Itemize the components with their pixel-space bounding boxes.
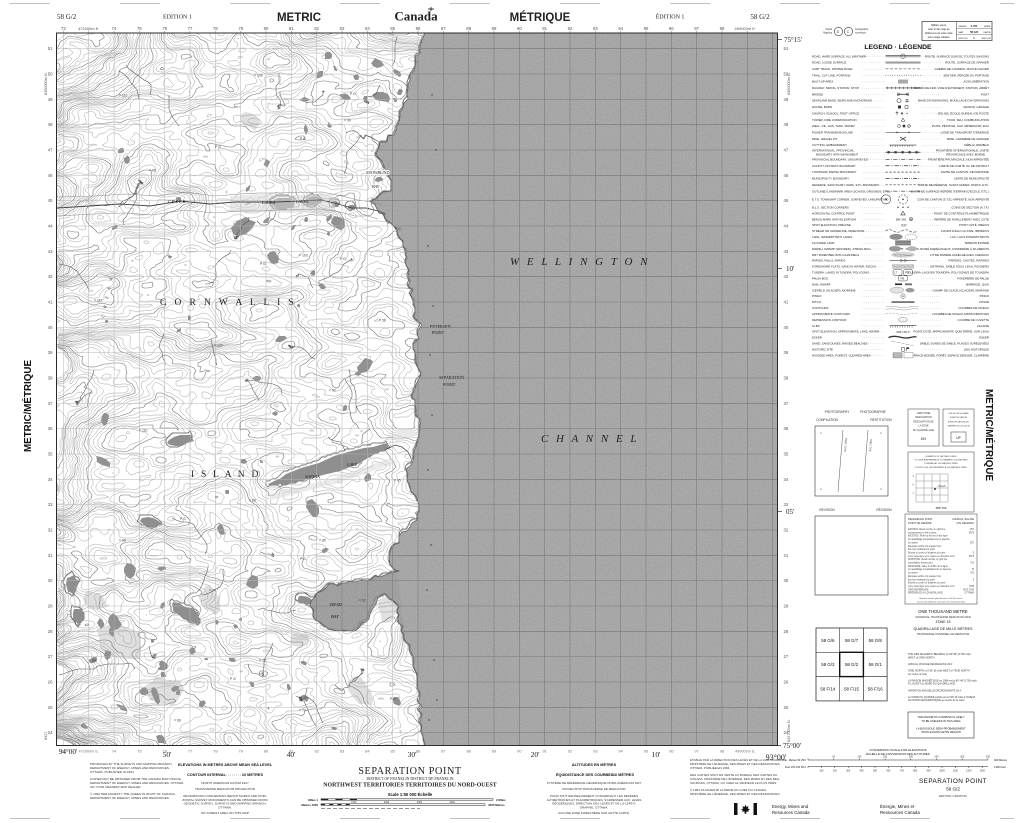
svg-text:I S L A N D: I S L A N D: [191, 470, 261, 480]
svg-text:8350000m N.: 8350000m N.: [44, 72, 48, 95]
svg-text:SÉRIE: SÉRIE: [984, 25, 991, 28]
svg-text:RESTITUTION: RESTITUTION: [870, 418, 892, 422]
svg-text:FLOODED LAND: FLOODED LAND: [812, 241, 835, 245]
svg-text:WOODED AREA, FOREST, CLEARED A: WOODED AREA, FOREST, CLEARED AREA: [812, 353, 871, 357]
svg-text:48: 48: [784, 122, 789, 127]
svg-text:SOPHIA: SOPHIA: [305, 474, 320, 479]
svg-text:85: 85: [390, 749, 395, 754]
svg-text:TUNDRA: LAKES IN TUNDRA, POLYG: TUNDRA: LAKES IN TUNDRA, POLYGONS: [812, 271, 869, 275]
svg-text:SERIES: SERIES: [959, 26, 968, 28]
svg-text:SABLE, DUNES DE SABLE, PLAGES: SABLE, DUNES DE SABLE, PLAGES SURÉLEVÉES: [920, 341, 989, 346]
svg-text:CARTE: CARTE: [983, 31, 991, 34]
svg-text:refer to this map as:: refer to this map as:: [928, 28, 950, 31]
svg-text:WELL, OIL, GAS, TANK, WATER: WELL, OIL, GAS, TANK, WATER: [812, 124, 855, 128]
svg-text:24: 24: [48, 730, 53, 735]
svg-text:ANNUAL CHANGE DECREASING 26.4': ANNUAL CHANGE DECREASING 26.4': [908, 663, 953, 666]
svg-text:NORTHWEST TERRITORIES TERRIT: NORTHWEST TERRITORIES TERRITOIRES DU NOR…: [323, 783, 496, 789]
svg-text:COUNTY, DISTRICT BOUNDARY: COUNTY, DISTRICT BOUNDARY: [812, 164, 856, 168]
svg-text:45: 45: [784, 198, 789, 203]
svg-text:ESKER: ESKER: [979, 336, 989, 340]
svg-text:350: 350: [986, 756, 991, 759]
svg-text:WEST of GRID NORTH: WEST of GRID NORTH: [908, 656, 935, 659]
svg-text:CHURCH, SCHOOL, POST OFFICE: CHURCH, SCHOOL, POST OFFICE: [812, 111, 859, 115]
svg-text:COINS DE SECTION (A.T.F.): COINS DE SECTION (A.T.F.): [951, 205, 989, 209]
svg-text:93: 93: [593, 26, 598, 31]
svg-text:REFERENCE POINT: REFERENCE POINT: [908, 517, 933, 521]
svg-text:34: 34: [784, 477, 789, 482]
svg-text:ÉCHELLE DE CONVERSION DES ALTI: ÉCHELLE DE CONVERSION DES ALTITUDES: [866, 751, 930, 756]
svg-text:TO BE USELESS IN THIS AREA: TO BE USELESS IN THIS AREA: [921, 719, 961, 723]
svg-text:POUR TOUS LES REPÉRÉS À 100 MÈ: POUR TOUS LES REPÉRÉS À 100 MÈTRES PRÈS: [915, 466, 967, 469]
svg-text:97: 97: [694, 26, 699, 31]
svg-text:A 701: A 701: [971, 24, 978, 28]
svg-text:DEPARTMENT OF ENERGY, MINES AN: DEPARTMENT OF ENERGY, MINES AND RESOURCE…: [90, 796, 170, 800]
svg-text:PHOTOGRAPHIE: PHOTOGRAPHIE: [860, 410, 886, 414]
svg-text:DITCH: DITCH: [812, 300, 821, 304]
svg-text:111: 111: [122, 94, 127, 98]
svg-text:96: 96: [669, 26, 674, 31]
svg-text:58 F/15: 58 F/15: [844, 686, 859, 691]
svg-text:9575: 9575: [969, 556, 975, 558]
svg-text:58 G/8: 58 G/8: [869, 638, 883, 643]
svg-text:4000: 4000: [450, 801, 456, 804]
svg-text:immediately below point: immediately below point: [908, 562, 933, 565]
svg-text:44: 44: [784, 224, 789, 229]
svg-text:78: 78: [212, 589, 216, 593]
svg-text:LA ZONE: LA ZONE: [918, 425, 929, 428]
svg-text:du repère: du repère: [908, 541, 919, 544]
svg-text:32: 32: [784, 527, 789, 532]
svg-text:OTTAWA. PUBLISHED IN 1984.: OTTAWA. PUBLISHED IN 1984.: [90, 770, 135, 774]
svg-text:C R E E K: C R E E K: [168, 199, 186, 204]
svg-text:75: 75: [137, 749, 142, 754]
svg-text:PONT: PONT: [981, 92, 989, 96]
svg-text:58 G/7: 58 G/7: [845, 638, 859, 643]
svg-text:82: 82: [314, 749, 319, 754]
svg-text:HEAD: HEAD: [329, 602, 343, 607]
svg-text:800: 800: [913, 770, 918, 773]
svg-text:METRIC/MÉTRIQUE: METRIC/MÉTRIQUE: [983, 389, 995, 481]
svg-text:ELEVATIONS IN METRES ABOVE MEA: ELEVATIONS IN METRES ABOVE MEAN SEA LEVE…: [178, 763, 273, 767]
svg-text:CART TRACK, WINTER ROAD: CART TRACK, WINTER ROAD: [812, 67, 852, 71]
svg-text:IDENTIFICATION: IDENTIFICATION: [950, 416, 968, 419]
svg-text:PROVINCIALE AVEC BORNE: PROVINCIALE AVEC BORNE: [946, 152, 985, 156]
svg-text:P G: P G: [260, 262, 266, 266]
svg-text:TOWER, FIRE COMMUNICATION: TOWER, FIRE COMMUNICATION: [812, 118, 857, 122]
svg-text:RÉFÉRENCE AU QUADRILLAGE: RÉFÉRENCE AU QUADRILLAGE: [908, 592, 943, 595]
svg-text:P G: P G: [300, 137, 306, 141]
svg-text:46: 46: [48, 173, 53, 178]
svg-text:P G: P G: [180, 517, 186, 521]
svg-text:La précision différente commun: La précision différente commune est à 10…: [917, 600, 965, 603]
svg-text:GRID ZONE: GRID ZONE: [917, 412, 931, 415]
svg-text:TRANSVERSE MERCATOR PROJECTION: TRANSVERSE MERCATOR PROJECTION: [195, 787, 255, 791]
svg-text:E.T.S. TOWNSHIP CORNER, SURVEY: E.T.S. TOWNSHIP CORNER, SURVEYED, UNSURV…: [812, 197, 888, 201]
svg-text:AUCUNE ZONE FORESTIÈRE SUR CET: AUCUNE ZONE FORESTIÈRE SUR CETTE CARTE.: [558, 810, 630, 815]
svg-text:EASTING. Read number on grid l: EASTING. Read number on grid line: [908, 528, 946, 531]
svg-text:PROVINCIAL BOUNDARY, UNSURVEYE: PROVINCIAL BOUNDARY, UNSURVEYED: [812, 158, 868, 162]
svg-text:39: 39: [784, 350, 789, 355]
svg-text:47: 47: [48, 148, 53, 153]
svg-text:9575: 9575: [969, 532, 975, 534]
svg-text:8350000m N.: 8350000m N.: [787, 72, 791, 95]
svg-text:POINT: POINT: [432, 330, 445, 335]
svg-text:ÉQUIDISTANCE DES COURBES: ÉQUIDISTANCE DES COURBES: [556, 772, 614, 777]
svg-text:88: 88: [466, 749, 471, 754]
svg-text:SOURCES, OTTAWA, OU CHEZ LE VE: SOURCES, OTTAWA, OU CHEZ LE VENDEUR LE P…: [690, 780, 777, 785]
svg-text:OUTLINED LANDMARK AREA (SCHOOL: OUTLINED LANDMARK AREA (SCHOOL GROUNDS, …: [812, 189, 890, 193]
svg-text:FONDRIÈRE DE PALSE: FONDRIÈRE DE PALSE: [957, 275, 989, 280]
svg-text:33: 33: [48, 502, 53, 507]
svg-text:ALTITUDES EN MÈTRES: ALTITUDES EN MÈTRES: [572, 762, 617, 767]
svg-text:LIMITE DE RÉSERVE, SANCTUAIRES: LIMITE DE RÉSERVE, SANCTUAIRES, PARCS, E…: [919, 182, 990, 187]
svg-text:98: 98: [720, 26, 725, 31]
svg-text:GRID REFERENCE: GRID REFERENCE: [908, 589, 929, 591]
svg-text:8327: 8327: [44, 732, 48, 740]
svg-text:POINT COTÉ, PRÉCIS: POINT COTÉ, PRÉCIS: [959, 222, 989, 227]
svg-text:78: 78: [213, 749, 218, 754]
svg-text:Référence de cette carte: Référence de cette carte: [925, 32, 953, 35]
svg-text:PETERSEN: PETERSEN: [430, 324, 451, 329]
svg-text:BOUNDARY WITH MONUMENT: BOUNDARY WITH MONUMENT: [816, 152, 859, 156]
svg-text:50: 50: [48, 72, 53, 77]
svg-text:CHEMIN DE FER, VOIE D'ÉVITEMEN: CHEMIN DE FER, VOIE D'ÉVITEMENT, STATION…: [913, 85, 989, 90]
svg-text:10 METRES: 10 METRES: [242, 773, 264, 777]
svg-text:900: 900: [927, 770, 932, 773]
svg-text:20': 20': [531, 750, 541, 759]
svg-text:46: 46: [784, 173, 789, 178]
svg-text:31: 31: [48, 553, 53, 558]
svg-text:THE MAGNETIC COMPASS IS LIKELY: THE MAGNETIC COMPASS IS LIKELY: [917, 715, 964, 719]
svg-text:MINE, CARRIÈRE DE GRAVIER: MINE, CARRIÈRE DE GRAVIER: [947, 136, 989, 141]
svg-text:W E L L I N G T O N: W E L L I N G T O N: [510, 256, 650, 268]
svg-text:this line northward to point: this line northward to point: [908, 578, 935, 581]
svg-text:2 Miles: 2 Miles: [496, 798, 506, 802]
svg-text:58 G/6: 58 G/6: [821, 638, 835, 643]
svg-text:COIN DE CANTON (S.T.E.) ARPENT: COIN DE CANTON (S.T.E.) ARPENTÉ, NON ARP…: [917, 196, 989, 201]
svg-text:COURBES DE NIVEAU APPROXIMATIV: COURBES DE NIVEAU APPROXIMATIVES: [932, 312, 989, 316]
svg-text:41: 41: [784, 300, 789, 305]
svg-text:40: 40: [48, 325, 53, 330]
svg-text:MARAIS, BOISÉ MARÉCAGEUX, FOND: MARAIS, BOISÉ MARÉCAGEUX, FONDRIÈRE À FI…: [908, 246, 989, 251]
svg-text:SNOWBLIND: SNOWBLIND: [366, 170, 390, 175]
svg-text:NO FOREST AREA ON THIS MAP: NO FOREST AREA ON THIS MAP: [201, 811, 249, 815]
svg-text:85: 85: [322, 539, 326, 543]
svg-text:32: 32: [48, 527, 53, 532]
svg-text:BAY: BAY: [331, 614, 339, 619]
svg-text:C H A N N E L: C H A N N E L: [541, 433, 639, 445]
svg-text:MÉTRIQUE: MÉTRIQUE: [510, 11, 571, 24]
svg-text:99: 99: [347, 119, 351, 123]
svg-text:8327000m N.: 8327000m N.: [787, 719, 791, 742]
svg-text:REVISION: REVISION: [819, 508, 835, 512]
svg-text:ONE THOUSAND METRE: ONE THOUSAND METRE: [918, 609, 968, 614]
svg-text:29: 29: [784, 603, 789, 608]
svg-text:74: 74: [112, 749, 117, 754]
svg-text:PUITS, PÉTROLE, GAZ, RÉSERVOIR: PUITS, PÉTROLE, GAZ, RÉSERVOIR, EAU: [932, 123, 989, 128]
svg-text:30': 30': [408, 750, 418, 759]
svg-text:TRANSVERSE UNIVERSEL DE MERCAT: TRANSVERSE UNIVERSEL DE MERCATOR: [917, 632, 970, 636]
svg-text:51: 51: [48, 46, 53, 51]
svg-text:91: 91: [542, 26, 547, 31]
svg-text:LAC, LACS INTERMITTENTS: LAC, LACS INTERMITTENTS: [950, 235, 989, 239]
svg-text:93: 93: [593, 749, 598, 754]
svg-text:DAM, WHARF: DAM, WHARF: [812, 282, 831, 286]
svg-text:25: 25: [48, 705, 53, 710]
svg-text:UP: UP: [956, 436, 960, 440]
svg-text:SPOT ELEVATION, PRECISE: SPOT ELEVATION, PRECISE: [812, 223, 851, 227]
svg-text:FALAISE: FALAISE: [977, 324, 989, 328]
svg-text:EXAMPLE OF METHOD USED: EXAMPLE OF METHOD USED: [926, 455, 957, 458]
svg-text:entre cette ligne et le repère: entre cette ligne et le repère en direct…: [908, 585, 955, 588]
svg-text:TOWNSHIP, PARISH BOUNDARY: TOWNSHIP, PARISH BOUNDARY: [812, 170, 857, 174]
svg-text:Resources Canada: Resources Canada: [772, 810, 810, 815]
svg-text:47: 47: [784, 148, 789, 153]
svg-text:Canada: Canada: [394, 9, 438, 24]
svg-text:45: 45: [397, 479, 401, 483]
svg-text:STREAM OR SHORELINE, INDEFINIT: STREAM OR SHORELINE, INDEFINITE: [812, 229, 864, 233]
svg-text:103: 103: [302, 254, 308, 258]
svg-text:400 Metres: 400 Metres: [994, 758, 1008, 762]
svg-text:42: 42: [784, 274, 789, 279]
svg-text:PINGO: PINGO: [980, 294, 990, 298]
svg-text:95: 95: [644, 749, 649, 754]
svg-text:1300: 1300: [980, 770, 986, 773]
svg-text:36: 36: [784, 426, 789, 431]
svg-text:85: 85: [390, 26, 395, 31]
svg-text:50': 50': [163, 750, 173, 759]
svg-text:15X: 15X: [921, 437, 928, 441]
svg-text:92: 92: [568, 26, 573, 31]
svg-text:76: 76: [162, 26, 167, 31]
svg-text:LIMITE DE COMTÉ OU DE DISTRICT: LIMITE DE COMTÉ OU DE DISTRICT: [940, 163, 990, 168]
svg-text:42: 42: [48, 274, 53, 279]
svg-text:DEPRESSION CONTOUR: DEPRESSION CONTOUR: [812, 318, 846, 322]
svg-text:77: 77: [188, 749, 193, 754]
svg-text:COURBES DE NIVEAU: COURBES DE NIVEAU: [958, 306, 989, 310]
svg-text:this line northward to point: this line northward to point: [908, 548, 935, 551]
svg-text:94°00': 94°00': [59, 748, 78, 756]
svg-text:RAPIDS, FALLS, RAPIDS: RAPIDS, FALLS, RAPIDS: [812, 259, 845, 263]
svg-text:70: 70: [302, 709, 306, 713]
svg-text:1100: 1100: [953, 770, 959, 773]
svg-text:90: 90: [517, 26, 522, 31]
svg-text:SAND, SAND DUNES, RAISED BEACH: SAND, SAND DUNES, RAISED BEACHES: [812, 342, 868, 346]
svg-text:CHEMIN DE CHARROI, ROUTE D'HIV: CHEMIN DE CHARROI, ROUTE D'HIVER: [935, 67, 989, 71]
svg-text:WESTING. Refer to the left of: WESTING. Refer to the left of the ligne: [908, 535, 948, 538]
svg-text:GRAPHIE, OTTAWA.: GRAPHIE, OTTAWA.: [580, 805, 609, 809]
svg-text:1200: 1200: [966, 770, 972, 773]
svg-text:TOUR, FEU, COMMUNICATION: TOUR, FEU, COMMUNICATION: [947, 118, 989, 122]
svg-text:POINT COTÉ, APPROXIMATIF, QUM: POINT COTÉ, APPROXIMATIF, QUM TERRE, SUR…: [913, 329, 989, 334]
svg-text:ESTRANS, SABLE SOUS L'EAU, ROC: ESTRANS, SABLE SOUS L'EAU, ROCHERS: [930, 265, 989, 269]
svg-text:PROJECTION TRANSVERSE DE MERCA: PROJECTION TRANSVERSE DE MERCATOR: [562, 787, 626, 791]
svg-text:30: 30: [784, 578, 789, 583]
svg-text:DISTRICT OF FRANKLIN DIST: DISTRICT OF FRANKLIN DISTRICT DE FRANKLI…: [366, 777, 453, 781]
svg-text:40: 40: [784, 325, 789, 330]
svg-text:44: 44: [48, 224, 53, 229]
svg-text:58 G/2: 58 G/2: [946, 787, 960, 792]
svg-text:METRIC: METRIC: [277, 12, 321, 24]
svg-text:LIMITE DE SURFACE REPÈRE (TERR: LIMITE DE SURFACE REPÈRE (TERRAIN D'ÉCOL…: [911, 188, 989, 193]
svg-text:entre cette ligne et le repère: entre cette ligne et le repère en direct…: [908, 555, 955, 558]
svg-text:Estimate tenths of a square fr: Estimate tenths of a square from: [908, 545, 941, 548]
svg-text:NORTHING. Read number on grid: NORTHING. Read number on grid line: [908, 558, 948, 561]
svg-text:Miles 1: Miles 1: [308, 798, 318, 802]
svg-text:39: 39: [48, 350, 53, 355]
svg-text:CONTOURS: CONTOURS: [812, 306, 829, 310]
svg-text:LEGEND · LÉGENDE: LEGEND · LÉGENDE: [864, 42, 932, 51]
svg-text:PB: PB: [901, 277, 905, 281]
svg-text:BUILT-UP AREA: BUILT-UP AREA: [812, 80, 833, 84]
svg-text:79: 79: [238, 749, 243, 754]
svg-text:MARSH, SWAMP (WOODED), STRING: MARSH, SWAMP (WOODED), STRING BOG: [812, 247, 871, 251]
svg-text:75°15': 75°15': [784, 36, 802, 44]
svg-text:472000m E.: 472000m E.: [78, 26, 100, 31]
svg-text:SEPARATION: SEPARATION: [439, 375, 464, 380]
svg-text:31: 31: [784, 553, 789, 558]
svg-text:Ressources Canada: Ressources Canada: [880, 810, 920, 815]
svg-text:(ON DEMAND): (ON DEMAND): [956, 521, 974, 525]
svg-text:26: 26: [784, 679, 789, 684]
svg-text:4000 Metres: 4000 Metres: [488, 803, 505, 807]
svg-text:80: 80: [264, 26, 269, 31]
svg-text:SENTIER, PERCÉE DU PORTAGE: SENTIER, PERCÉE DU PORTAGE: [943, 72, 989, 77]
svg-text:86: 86: [416, 749, 421, 754]
svg-text:LIMITE DE MUNICIPALITÉ: LIMITE DE MUNICIPALITÉ: [954, 176, 989, 181]
svg-text:108: 108: [257, 74, 263, 78]
svg-text:7035: 7035: [969, 586, 975, 588]
svg-text:P G: P G: [390, 697, 396, 701]
svg-text:43: 43: [48, 249, 53, 254]
svg-text:P G: P G: [215, 145, 221, 149]
svg-text:Mapping: Mapping: [823, 33, 833, 35]
svg-text:83: 83: [340, 26, 345, 31]
svg-text:300: 300: [846, 770, 851, 773]
svg-text:PG: PG: [905, 271, 909, 275]
svg-text:PALSA BOG: PALSA BOG: [812, 276, 829, 280]
svg-text:MUNICIPALITY BOUNDARY: MUNICIPALITY BOUNDARY: [812, 177, 849, 181]
svg-text:ROAD, LOOSE SURFACE: ROAD, LOOSE SURFACE: [812, 61, 846, 65]
svg-text:58 G/1: 58 G/1: [869, 662, 883, 667]
svg-text:83: 83: [340, 749, 345, 754]
svg-text:28: 28: [48, 629, 53, 634]
svg-text:100: 100: [857, 756, 862, 759]
svg-text:472000m E.: 472000m E.: [78, 750, 98, 754]
svg-text:38: 38: [784, 375, 789, 380]
svg-text:94: 94: [618, 749, 623, 754]
svg-text:72: 72: [262, 659, 266, 663]
svg-text:ROUTE, SURFACE DURCIE, TOUTES: ROUTE, SURFACE DURCIE, TOUTES SAISONS: [925, 54, 989, 58]
svg-text:ÉDITION 1: ÉDITION 1: [656, 13, 685, 21]
svg-text:LIEU HISTORIQUE: LIEU HISTORIQUE: [964, 347, 989, 351]
svg-text:DÉSIGNATION DE: DÉSIGNATION DE: [913, 420, 934, 423]
svg-text:BRIDGE: BRIDGE: [812, 92, 823, 96]
svg-text:TERRAIN INONDÉ: TERRAIN INONDÉ: [964, 240, 989, 245]
svg-text:Énergie, Mines et: Énergie, Mines et: [880, 804, 915, 809]
svg-text:Metres 1000: Metres 1000: [301, 803, 318, 807]
svg-text:MINE, GRAVEL PIT: MINE, GRAVEL PIT: [812, 137, 838, 141]
svg-text:Energy, Mines and: Energy, Mines and: [772, 804, 809, 809]
svg-text:499000m E.: 499000m E.: [735, 26, 757, 31]
svg-text:Military users,: Military users,: [931, 24, 947, 27]
svg-text:Cartographie: Cartographie: [855, 28, 869, 31]
svg-text:P G: P G: [350, 92, 356, 96]
svg-text:consecutively to left of point: consecutively to left of point,: [908, 531, 937, 534]
svg-text:64: 64: [92, 659, 96, 663]
svg-text:COURBE DE CUVETTE: COURBE DE CUVETTE: [958, 318, 990, 322]
svg-text:CARRÉ DE 100 000 M: CARRÉ DE 100 000 M: [947, 425, 969, 428]
svg-text:10': 10': [786, 265, 794, 273]
svg-text:Digital: Digital: [826, 28, 833, 31]
svg-text:du repère: du repère: [908, 572, 919, 575]
svg-text:UNIVERSAL TRANSVERSE MERCATOR: UNIVERSAL TRANSVERSE MERCATOR GRID: [915, 615, 971, 619]
svg-text:Entries to centre of dizaines: Entries to centre of dizaines du carré: [908, 582, 946, 585]
svg-text:97: 97: [694, 749, 699, 754]
svg-text:Metres 50 25 0: Metres 50 25 0: [789, 758, 807, 762]
svg-text:58 G/2: 58 G/2: [750, 13, 770, 21]
svg-text:RAPIDES, CHUTES, RAPIDES: RAPIDES, CHUTES, RAPIDES: [949, 259, 990, 263]
svg-text:POINT: POINT: [443, 382, 456, 387]
svg-text:200: 200: [833, 770, 838, 773]
svg-text:27: 27: [784, 654, 789, 659]
svg-text:Church: Church: [938, 485, 946, 488]
svg-text:95: 95: [152, 169, 156, 173]
svg-text:75: 75: [137, 26, 142, 31]
svg-text:400: 400: [860, 770, 865, 773]
svg-text:BM 365: BM 365: [896, 218, 907, 222]
svg-text:SPOT ELEVATION, APPROXIMATE, L: SPOT ELEVATION, APPROXIMATE, LAKE, WATER: [812, 330, 879, 334]
svg-text:Maintain uniform grid referenc: Maintain uniform grid references 100 000…: [919, 597, 962, 600]
svg-text:PINGO: PINGO: [812, 294, 822, 298]
svg-text:SEPARATION POINT: SEPARATION POINT: [358, 766, 462, 777]
svg-text:TOUNDRA: LACS EN TOUNDRA, POLY: TOUNDRA: LACS EN TOUNDRA, POLYGONES DE T…: [906, 271, 989, 275]
svg-text:TO GIVE A REFERENCE TO NEAREST: TO GIVE A REFERENCE TO NEAREST 100 METRE…: [914, 459, 968, 462]
svg-text:IDENTIFICATION DU: IDENTIFICATION DU: [948, 420, 969, 423]
svg-text:92: 92: [332, 389, 336, 393]
svg-text:BAY: BAY: [372, 184, 380, 189]
svg-text:25: 25: [784, 705, 789, 710]
svg-text:94: 94: [618, 26, 623, 31]
svg-text:CLIFF: CLIFF: [812, 324, 820, 328]
svg-text:FORESHORE FLATS, SAND IN WATER: FORESHORE FLATS, SAND IN WATER, ROCKS: [812, 265, 876, 269]
svg-text:DEVANCÉE. Noter le chiffre de: DEVANCÉE. Noter le chiffre de la ligne: [908, 565, 948, 568]
svg-text:POINT DE CONTRÔLE PLANIMÉTRIQU: POINT DE CONTRÔLE PLANIMÉTRIQUE: [934, 210, 989, 215]
svg-text:30: 30: [48, 578, 53, 583]
svg-text:988 150.5: 988 150.5: [896, 330, 910, 334]
svg-text:BASE D'HYDRAVIONS, MOUILLAGE D: BASE D'HYDRAVIONS, MOUILLAGE D'HYDRAVION…: [918, 99, 989, 103]
svg-text:87: 87: [441, 749, 446, 754]
svg-text:LT: LT: [894, 271, 897, 275]
svg-text:OTTAWA: OTTAWA: [965, 592, 975, 595]
svg-text:ROAD, HARD SURFACE, ALL WEATHE: ROAD, HARD SURFACE, ALL WEATHER: [812, 54, 866, 58]
svg-text:48: 48: [48, 122, 53, 127]
svg-text:ÉDITION: ÉDITION: [982, 37, 991, 40]
svg-text:ÉGLISE, ÉCOLE, BUREAU DE POSTE: ÉGLISE, ÉCOLE, BUREAU DE POSTE: [938, 110, 989, 115]
svg-text:84: 84: [365, 749, 370, 754]
svg-text:REPÈRE DE NIVELLEMENT AVEC COT: REPÈRE DE NIVELLEMENT AVEC COTE: [934, 216, 989, 221]
svg-text:RESERVE, SANCTUARY, PARK, ETC.: RESERVE, SANCTUARY, PARK, ETC. BOUNDARY: [812, 183, 879, 187]
svg-text:89: 89: [492, 749, 497, 754]
svg-text:90: 90: [517, 749, 522, 754]
svg-text:96: 96: [669, 749, 674, 754]
svg-text:58 G/2: 58 G/2: [845, 662, 859, 667]
svg-text:METRIC/MÉTRIQUE: METRIC/MÉTRIQUE: [22, 360, 34, 452]
svg-text:300: 300: [960, 756, 965, 759]
svg-text:HORIZONTAL CONTROL POINT: HORIZONTAL CONTROL POINT: [812, 211, 855, 215]
svg-text:LIT DE RIVIÈRE ASSÉCHÉ AVEC CH: LIT DE RIVIÈRE ASSÉCHÉ AVEC CHENAUX: [930, 252, 989, 257]
svg-text:TRAIL, CUT LINE, PORTAGE: TRAIL, CUT LINE, PORTAGE: [812, 73, 850, 77]
